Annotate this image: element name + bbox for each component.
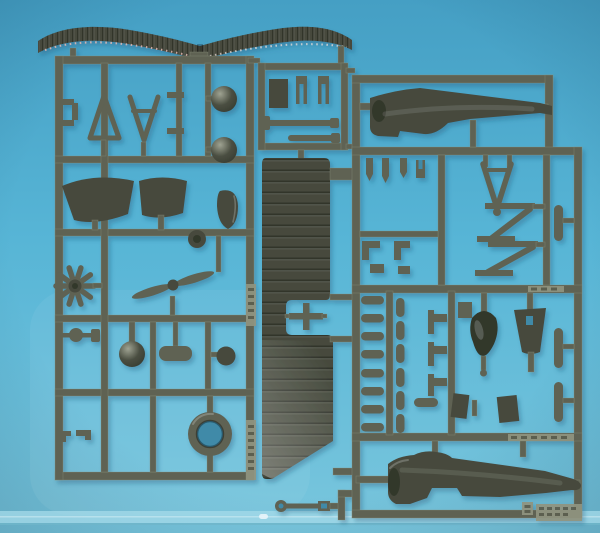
clamp-flange-part [167, 128, 184, 134]
seat-pad-part [159, 346, 192, 361]
sprue-pin [298, 150, 304, 159]
sprue-pin [173, 322, 178, 346]
sprue-pin [330, 294, 353, 300]
sprue-pin [333, 468, 353, 475]
sprue-pin [527, 293, 533, 310]
plate-part [497, 395, 520, 423]
block-part [398, 266, 410, 274]
runner-bridge [346, 68, 355, 73]
runner-rail [258, 63, 348, 70]
equipment-box-part [269, 79, 288, 108]
engine-opening [372, 100, 386, 122]
dome-bowl-part [211, 86, 237, 112]
sprue-pin [216, 236, 221, 272]
runner-rail [55, 229, 254, 236]
plate-part [451, 393, 470, 419]
paper-speck [259, 514, 268, 519]
dome-bowl-part [211, 137, 237, 163]
bracket-arm [72, 103, 78, 120]
runner-rail [386, 291, 393, 435]
sprue-pin [472, 400, 477, 416]
runner-rail [205, 63, 211, 156]
block-part [370, 264, 384, 273]
runner-bridge [248, 58, 260, 63]
engine-opening [388, 468, 400, 496]
runner-rail [543, 155, 550, 285]
sprue-pin [158, 215, 164, 230]
runner-rail [246, 56, 254, 480]
clevis-part [416, 160, 425, 178]
backdrop-fold-line [0, 523, 600, 525]
runner-rail [150, 322, 156, 389]
runner-rail [352, 75, 360, 518]
sprue-pin [356, 476, 390, 483]
wheel-disc-part [217, 347, 236, 366]
seat-fairing-part [139, 178, 187, 218]
runner-rail [360, 231, 438, 237]
runner-rail [352, 75, 553, 83]
runner-rail [545, 75, 553, 155]
embossed-strip [508, 434, 574, 441]
sprue-pin [92, 220, 98, 230]
runner-rail [55, 315, 254, 322]
bullet-part [414, 398, 438, 407]
runner-rail [438, 155, 445, 285]
sprue-pin [141, 142, 146, 156]
runner-rail [150, 396, 156, 472]
embossed-strip [528, 286, 564, 292]
sprue-pin [129, 322, 135, 342]
seat-fairing-part [62, 177, 134, 222]
runner-rail [352, 147, 582, 155]
sprue-pin [93, 283, 102, 288]
sprue-pin [101, 140, 106, 156]
sprue-pin [207, 396, 213, 414]
sprue-pin [330, 336, 353, 342]
runner-rail [55, 389, 254, 396]
clamp-flange-part [167, 92, 184, 98]
runner-rail [341, 63, 348, 150]
embossed-plate-vertical [246, 284, 256, 326]
spinner-dome-part [119, 341, 145, 367]
runner-rail [205, 322, 211, 389]
runner-rail [55, 472, 254, 480]
bolt-block-part [458, 302, 472, 318]
runner-rail [176, 63, 182, 156]
sprue-pin [520, 441, 526, 457]
runner-rail [574, 147, 582, 518]
axle-disc [69, 328, 83, 342]
sprue-photo-canvas [0, 0, 600, 533]
axle-cap [91, 329, 100, 342]
photo-of-model-kit-sprues [0, 0, 600, 533]
runner-rail [101, 63, 108, 472]
runner-rail [55, 56, 254, 64]
runner-bridge [338, 490, 354, 497]
sprue-pin [207, 454, 213, 472]
sprue-pin [470, 120, 476, 147]
runner-rail [258, 143, 348, 150]
wing-tab [330, 168, 353, 180]
embossed-plate-vertical [246, 420, 256, 480]
sprue-pin [170, 296, 175, 315]
wheel-hub-center [193, 235, 201, 243]
runner-rail [258, 63, 265, 150]
